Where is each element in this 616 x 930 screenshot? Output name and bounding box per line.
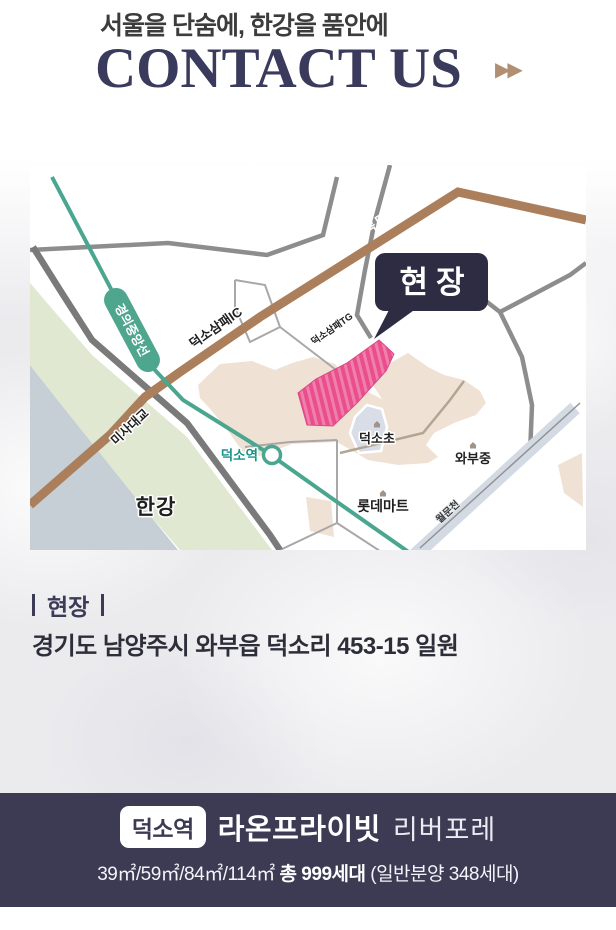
location-section-title: 현장 (32, 588, 104, 622)
school-middle-label: 와부중 (455, 451, 491, 466)
next-arrows-icon[interactable]: ▶▶ (495, 57, 520, 82)
rail-line-badge: 경의중앙선 (100, 284, 164, 376)
total-units: 총 999세대 (280, 864, 366, 885)
site-address: 경기도 남양주시 와부읍 덕소리 453-15 일원 (32, 626, 458, 661)
site-callout: 현장 (374, 253, 488, 339)
divider-bar (32, 594, 35, 616)
river-label: 한강 (136, 496, 177, 519)
urban-area-corner (558, 453, 583, 507)
footer-brand-row: 덕소역 라온프라이빗 리버포레 (0, 806, 616, 848)
sub-brand-name: 리버포레 (393, 808, 496, 847)
tollgate-label: 덕소삼패TG (309, 310, 355, 347)
units-note: (일반분양 348세대) (370, 864, 519, 885)
station-label: 덕소역 (221, 447, 258, 463)
unit-sizes: 39㎡/59㎡/84㎡/114㎡ (97, 864, 275, 885)
footer-units-row: 39㎡/59㎡/84㎡/114㎡ 총 999세대 (일반분양 348세대) (0, 859, 616, 886)
brand-name: 라온프라이빗 (218, 806, 381, 848)
divider-bar (101, 594, 104, 616)
station-marker (264, 447, 281, 464)
location-map: 경의중앙선 덕소역 서울~양양고속도로 덕소삼패IC 덕소삼패TG 미사대교 한… (30, 165, 586, 550)
footer-banner: 덕소역 라온프라이빗 리버포레 39㎡/59㎡/84㎡/114㎡ 총 999세대… (0, 793, 616, 907)
school-elementary-label: 덕소초 (359, 431, 395, 446)
site-callout-label: 현장 (399, 265, 472, 300)
mart-label: 롯데마트 (357, 498, 409, 514)
page-title: CONTACT US (95, 36, 462, 101)
location-title-text: 현장 (47, 588, 89, 622)
contact-us-page: 서울을 단숨에, 한강을 품안에 CONTACT US ▶▶ (0, 0, 616, 930)
station-badge: 덕소역 (120, 806, 206, 848)
